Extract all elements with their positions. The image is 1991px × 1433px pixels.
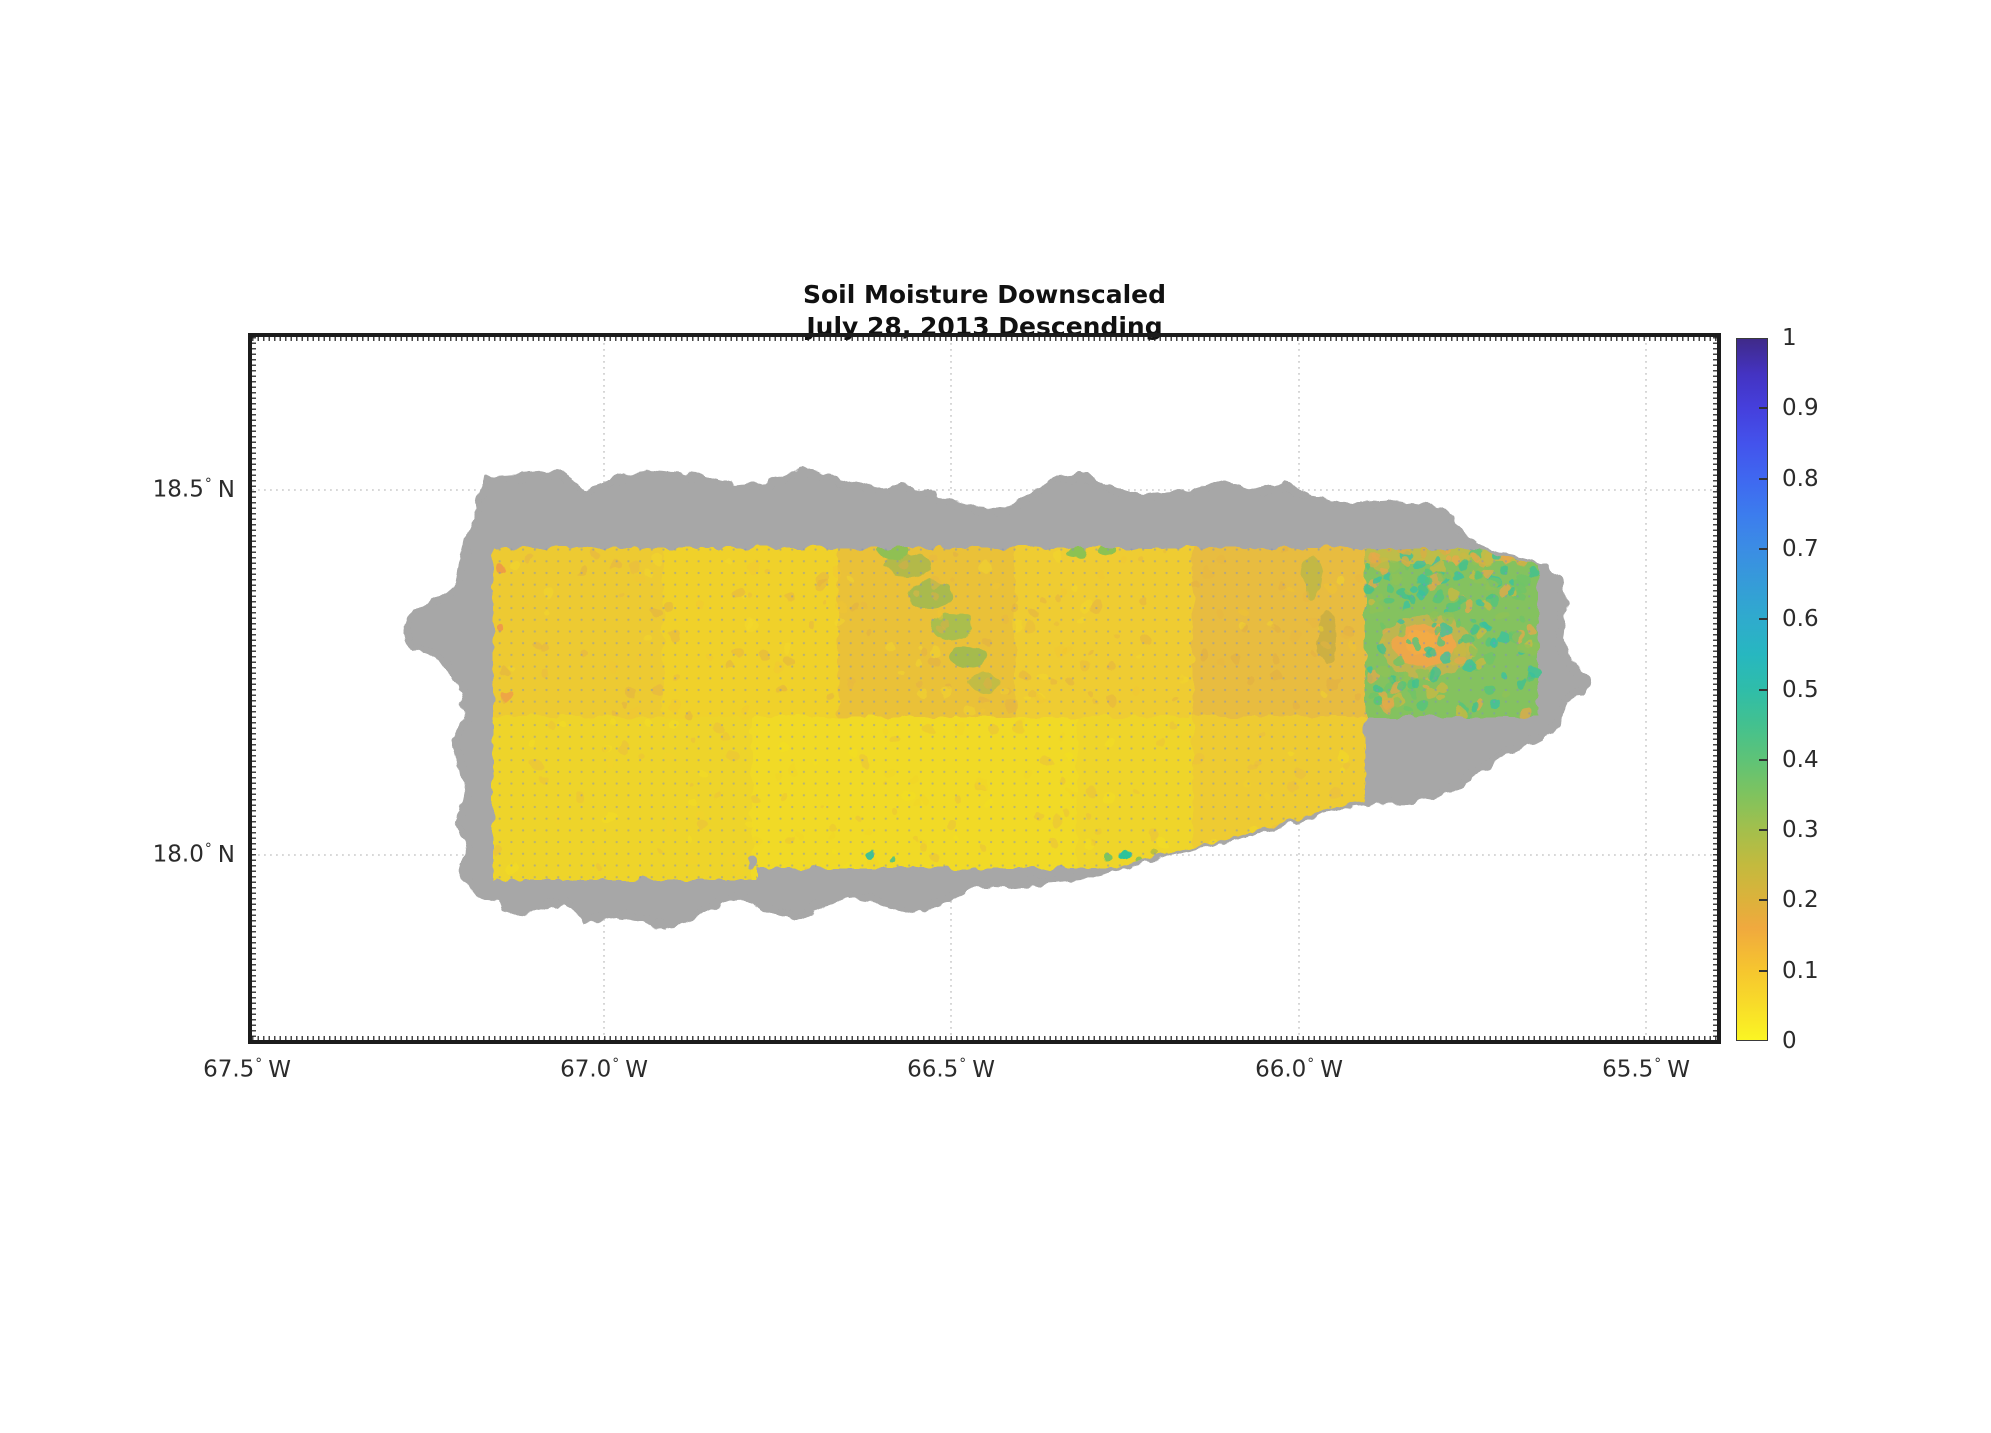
xtick-66-5w: 66.5°W bbox=[871, 1056, 1031, 1083]
xtick-67-0w: 67.0°W bbox=[524, 1056, 684, 1083]
colorbar-tick bbox=[1759, 759, 1768, 761]
colorbar-label-0-1: 0.1 bbox=[1782, 958, 1819, 984]
colorbar-tick bbox=[1759, 478, 1768, 480]
colorbar-label-1: 1 bbox=[1782, 325, 1797, 351]
colorbar-label-0-6: 0.6 bbox=[1782, 606, 1819, 632]
colorbar-label-0-3: 0.3 bbox=[1782, 817, 1819, 843]
colorbar-tick bbox=[1759, 618, 1768, 620]
colorbar-label-0-9: 0.9 bbox=[1782, 395, 1819, 421]
colorbar-label-0-4: 0.4 bbox=[1782, 747, 1819, 773]
colorbar-label-0-8: 0.8 bbox=[1782, 466, 1819, 492]
colorbar-tick bbox=[1759, 899, 1768, 901]
colorbar-tick bbox=[1759, 689, 1768, 691]
xtick-66-0w: 66.0°W bbox=[1219, 1056, 1379, 1083]
colorbar-tick bbox=[1759, 829, 1768, 831]
colorbar-label-0-5: 0.5 bbox=[1782, 677, 1819, 703]
colorbar-tick bbox=[1759, 548, 1768, 550]
colorbar-label-0: 0 bbox=[1782, 1028, 1797, 1054]
figure-canvas: Soil Moisture Downscaled July 28, 2013 D… bbox=[0, 0, 1991, 1433]
colorbar-tick bbox=[1759, 407, 1768, 409]
xtick-67-5w: 67.5°W bbox=[167, 1056, 327, 1083]
plot-title-line1: Soil Moisture Downscaled bbox=[252, 279, 1717, 311]
colorbar-tick bbox=[1759, 970, 1768, 972]
xtick-65-5w: 65.5°W bbox=[1566, 1056, 1726, 1083]
axes-frame bbox=[248, 333, 1721, 1044]
ytick-18-5n: 18.5°N bbox=[85, 476, 235, 503]
ytick-18-0n: 18.0°N bbox=[85, 841, 235, 868]
colorbar-label-0-7: 0.7 bbox=[1782, 536, 1819, 562]
colorbar-label-0-2: 0.2 bbox=[1782, 887, 1819, 913]
